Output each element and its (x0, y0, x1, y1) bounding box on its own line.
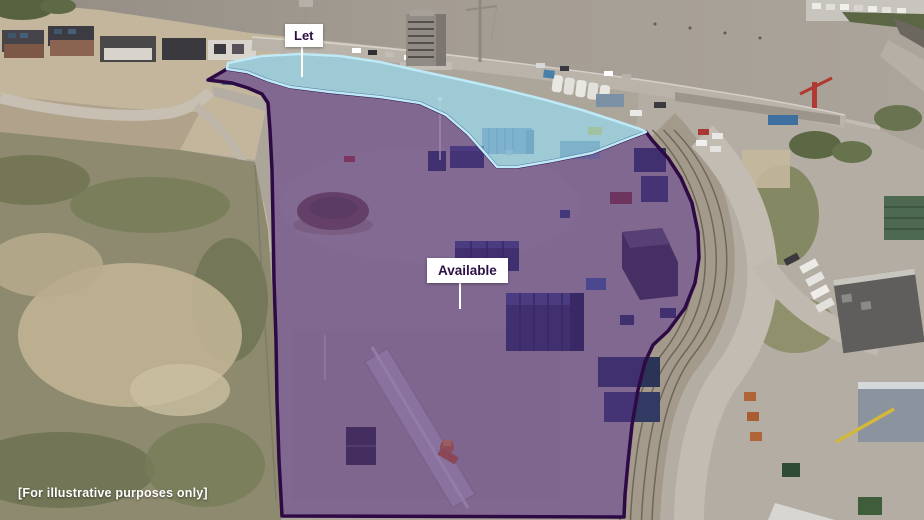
let-label: Let (285, 24, 323, 47)
dumpster (858, 497, 882, 515)
depot-building (833, 269, 924, 354)
available-leader-line (459, 282, 461, 309)
tower-building (400, 10, 452, 70)
illustrative-caption: [For illustrative purposes only] (18, 486, 208, 500)
available-label: Available (427, 258, 508, 283)
scrub-field (0, 132, 281, 520)
blue-container (768, 115, 798, 125)
property-aerial-image: Let Available [For illustrative purposes… (0, 0, 924, 520)
let-leader-line (301, 46, 303, 77)
